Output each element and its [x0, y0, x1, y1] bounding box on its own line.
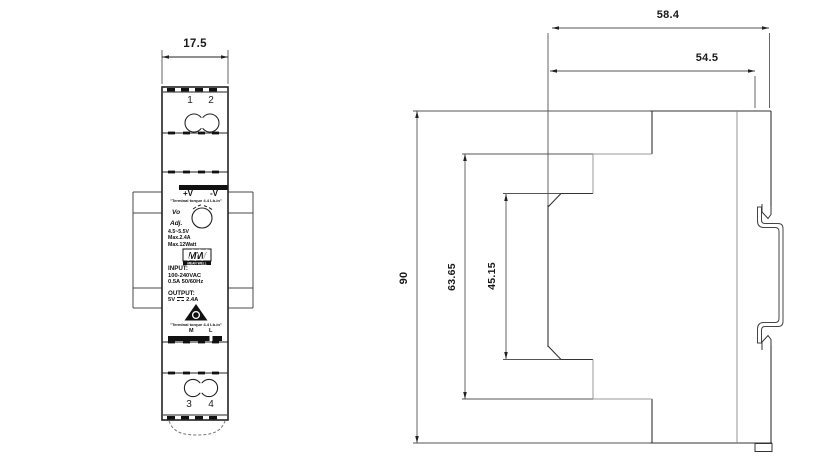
terminal-1-label: 1 — [184, 95, 196, 106]
terminal-2-label: 2 — [205, 95, 217, 106]
terminal-4-label: 4 — [205, 399, 217, 410]
output-volt: 5V — [168, 297, 175, 303]
dim-width-lines — [162, 50, 228, 84]
vo-label: Vo — [172, 209, 180, 216]
technical-drawing: MW MEAN WELL — [0, 0, 838, 472]
input-current-freq: 0.5A 50/60Hz — [168, 279, 203, 285]
output-amp: 2.4A — [186, 297, 198, 303]
output-rating: 5V2.4A — [168, 297, 198, 303]
output-negative-label: -V — [210, 189, 218, 198]
product-label: +V -V "Terminal torque 4.4 Lb-in" Vo Adj… — [165, 184, 227, 342]
clip-foot — [755, 444, 772, 452]
dim-front-height-label: 45.15 — [486, 262, 498, 290]
input-voltage: 100-240VAC — [168, 273, 201, 279]
side-body-light-edges — [593, 111, 737, 443]
clip-arc-hidden-line — [169, 421, 225, 435]
dim-width-label: 17.5 — [162, 38, 228, 50]
output-heading: OUTPUT: — [168, 290, 195, 297]
drawing-canvas: MW MEAN WELL — [0, 0, 838, 472]
max-power: Max.12Watt — [168, 242, 196, 248]
torque-note-bottom: "Terminal torque 4.4 Lb-in" — [168, 322, 224, 327]
terminal-3-label: 3 — [183, 399, 195, 410]
dim-mid-height-label: 63.65 — [446, 263, 458, 291]
adj-label: Adj. — [170, 220, 182, 227]
cert-symbol-left: M — [189, 328, 194, 334]
cert-symbol-right: L — [209, 328, 212, 334]
output-positive-label: +V — [183, 189, 193, 198]
dim-overall-depth-label: 58.4 — [633, 9, 703, 21]
torque-note-top: "Terminal torque 4.4 Lb-in" — [168, 198, 224, 203]
spec-lines: 4.5~5.5V Max.2.4A Max.12Watt — [168, 229, 196, 248]
side-dim-lines — [413, 28, 770, 443]
dim-body-depth-label: 54.5 — [672, 52, 742, 64]
dc-symbol-icon — [177, 297, 184, 301]
dim-height-label: 90 — [398, 272, 410, 285]
din-rail-profile — [758, 207, 784, 343]
side-dim-arrows — [415, 26, 769, 443]
input-heading: INPUT: — [168, 265, 188, 272]
side-body — [548, 111, 772, 443]
